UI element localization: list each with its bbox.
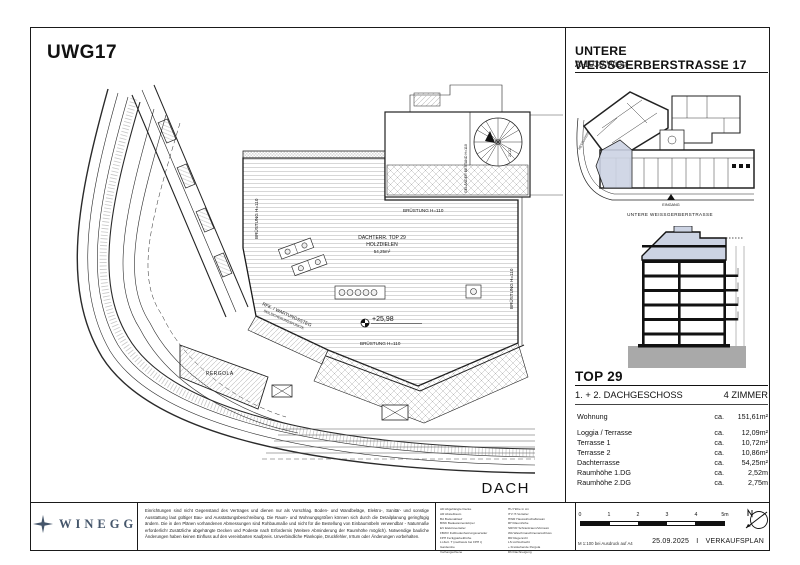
- footer-cell-divider: [435, 502, 436, 551]
- parapet-label-right: BRÜSTUNG H=110: [508, 268, 514, 309]
- table-row: Raumhöhe 1.DGca.2,52m: [577, 468, 768, 477]
- footer-divider: [30, 502, 770, 503]
- entrance-marker: [667, 194, 675, 200]
- table-row: Terrasse 1ca.10,72m²: [577, 438, 768, 447]
- unit-rule-thin: [575, 404, 768, 405]
- table-row: Dachterrasseca.54,25m²: [577, 458, 768, 467]
- header-rule: [575, 72, 768, 73]
- separator: I: [696, 538, 698, 545]
- street-label: UNTERE WEISSGERBERSTRASSE: [627, 212, 713, 217]
- legend-column-1: AD Abgehängte DeckeAR Abstellraum BA Bod…: [440, 507, 504, 555]
- disclaimer-text: Einrichtungen sind nicht Gegenstand des …: [145, 508, 429, 541]
- table-row: Raumhöhe 2.DGca.2,75m: [577, 478, 768, 487]
- winegg-logo: WINEGG: [33, 514, 137, 534]
- section-ground: [628, 346, 746, 368]
- side-street-label: HETZGASSE: [577, 130, 591, 151]
- building-section: [628, 226, 746, 368]
- winegg-wordmark: WINEGG: [59, 517, 137, 532]
- table-row: Terrasse 2ca.10,86m²: [577, 448, 768, 457]
- address-subtitle: A-1030 Wien: [575, 59, 627, 69]
- plan-type: VERKAUFSPLAN: [706, 538, 764, 545]
- abbreviation-legend: AD Abgehängte DeckeAR Abstellraum BA Bod…: [440, 507, 572, 555]
- level-value: +25,98: [372, 316, 394, 323]
- section-slabs: [638, 260, 738, 348]
- scale-tick: 5m: [721, 512, 728, 518]
- winegg-compass-icon: [33, 514, 53, 534]
- plan-sheet: UWG17: [0, 0, 800, 565]
- railing-label: GELÄNDER BESTAND H=110: [464, 144, 468, 193]
- unit-rule: [575, 385, 768, 386]
- unit-floor: 1. + 2. DACHGESCHOSS: [575, 390, 683, 400]
- site-plan: EINGANG UNTERE WEISSGERBERSTRASSE HETZGA…: [572, 88, 768, 220]
- terrace-label-line2: HOLZDIELEN: [366, 242, 398, 248]
- scale-tick: 3: [666, 512, 669, 518]
- parapet-label-bottom: BRÜSTUNG H=110: [360, 340, 401, 346]
- scale-bar: [580, 521, 725, 526]
- table-row: Wohnungca.151,61m²: [577, 412, 768, 421]
- pergola-area: [180, 345, 268, 409]
- upper-roof-structure: [385, 85, 563, 197]
- roof-plan-drawing: +25,98 DACHTERR. TOP 29 HOLZDIELEN 54,25…: [30, 27, 566, 502]
- pergola-label: PERGOLA: [206, 371, 234, 377]
- scale-tick: 4: [695, 512, 698, 518]
- legend-column-2: HU Höhe in cmITV IT-Verteiler HWR Hauswi…: [508, 507, 572, 555]
- terrace-label-line1: DACHTERR. TOP 29: [358, 235, 406, 241]
- plan-date-type: 25.09.2025 I VERKAUFSPLAN: [647, 538, 764, 545]
- plan-name-label: DACH: [481, 480, 530, 497]
- table-row: Loggia / Terrasseca.12,09m²: [577, 428, 768, 437]
- unit-name: TOP 29: [575, 369, 623, 384]
- terrace-label-area: 54,25m²: [374, 249, 391, 254]
- scale-note: M 1:100 bei Ausdruck auf A4: [578, 541, 633, 546]
- entrance-label: EINGANG: [662, 203, 680, 207]
- scale-tick: 2: [637, 512, 640, 518]
- scale-tick: 1: [608, 512, 611, 518]
- footer-cell-divider: [575, 502, 576, 551]
- scale-tick: 0: [579, 512, 582, 518]
- stair-note: 21,22: [508, 148, 512, 157]
- parapet-label-top: BRÜSTUNG H=110: [403, 207, 444, 213]
- north-arrow-icon: [744, 506, 770, 532]
- unit-rooms: 4 ZIMMER: [724, 390, 768, 400]
- spiral-stair: [474, 118, 522, 166]
- parapet-label-left: BRÜSTUNG H=110: [253, 198, 259, 239]
- plan-date: 25.09.2025: [652, 538, 689, 545]
